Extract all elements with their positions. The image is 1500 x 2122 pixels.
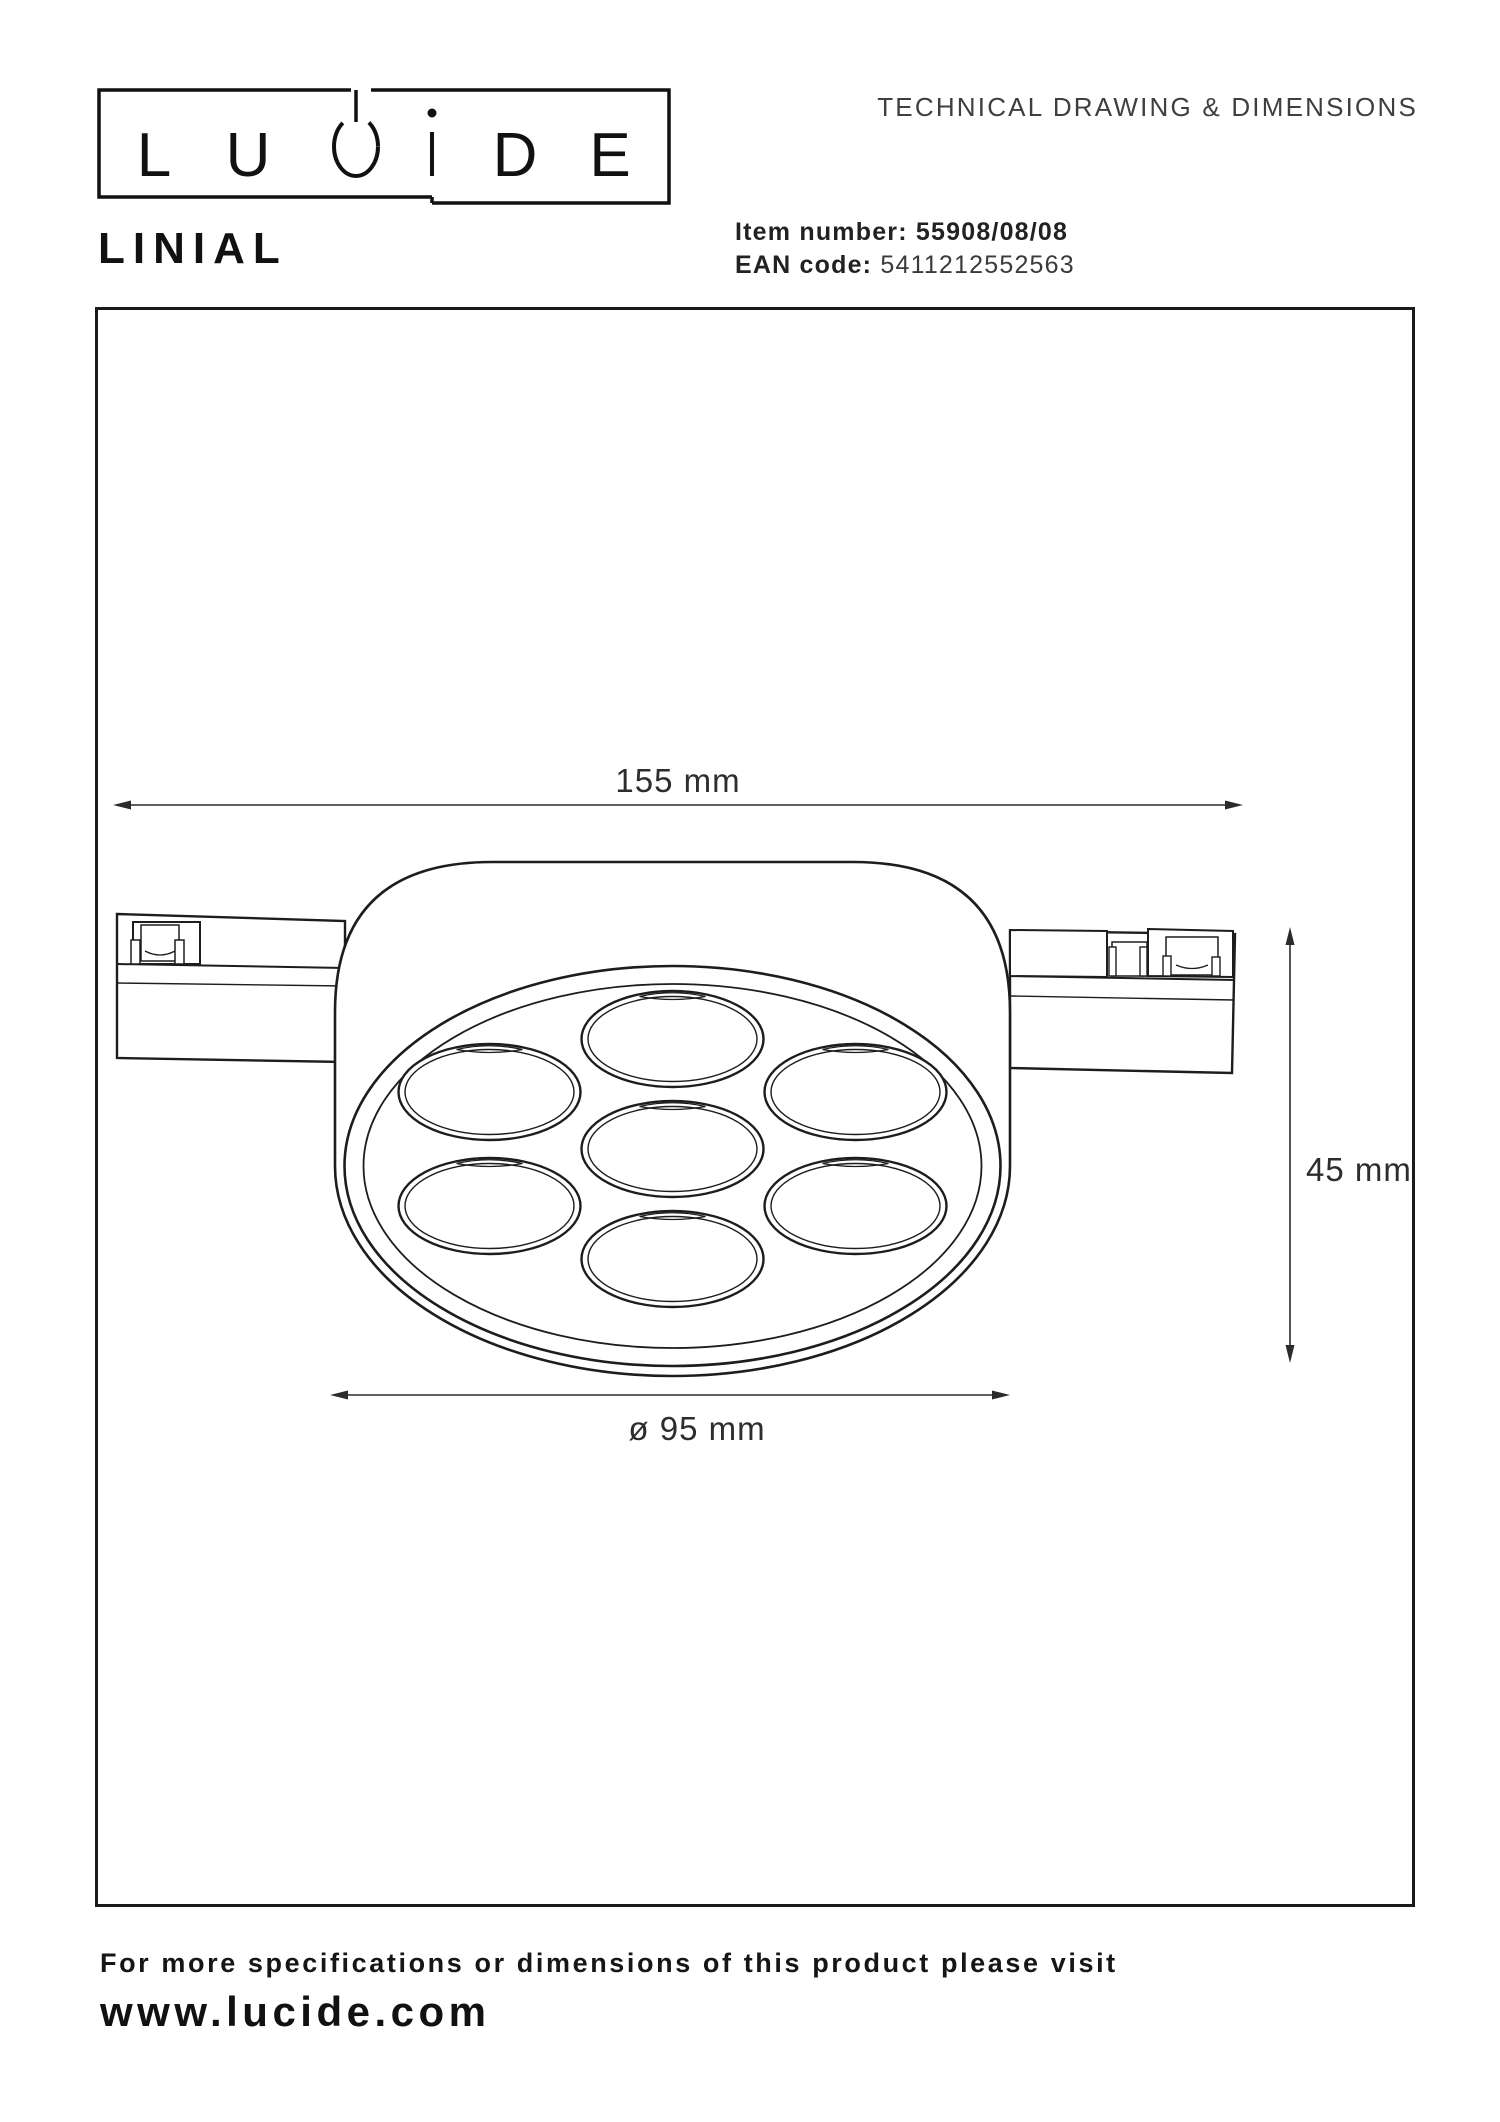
logo-letter-l: L xyxy=(137,121,171,190)
track-right xyxy=(1010,929,1235,1073)
lens xyxy=(582,991,764,1087)
product-identifiers: Item number: 55908/08/08 EAN code: 54112… xyxy=(735,216,1075,282)
fixture-head xyxy=(335,862,1010,1376)
arrow-left-icon xyxy=(330,1391,348,1400)
lens xyxy=(765,1158,947,1254)
diameter-dimension-label: ø 95 mm xyxy=(628,1410,765,1447)
item-number-value: 55908/08/08 xyxy=(916,218,1068,246)
arrow-right-icon xyxy=(1225,801,1243,810)
logo-letter-c-glyph xyxy=(334,117,378,176)
brand-logo: L U D E xyxy=(95,88,673,206)
footer-note: For more specifications or dimensions of… xyxy=(100,1948,1118,1979)
diameter-dimension: ø 95 mm xyxy=(330,1391,1010,1448)
width-dimension-label: 155 mm xyxy=(615,762,740,799)
lens xyxy=(582,1211,764,1307)
track-left xyxy=(117,914,345,1062)
lens xyxy=(582,1101,764,1197)
item-number-row: Item number: 55908/08/08 xyxy=(735,216,1075,249)
website-link: www.lucide.com xyxy=(100,1988,491,2036)
product-name: LINIAL xyxy=(98,224,288,274)
lens xyxy=(765,1044,947,1140)
logo-letter-u: U xyxy=(226,121,271,190)
track-left-adapter xyxy=(131,922,200,964)
lens xyxy=(399,1044,581,1140)
height-dimension: 45 mm xyxy=(1286,927,1412,1363)
datasheet-page: L U D E TECHNICAL DRAWING & DIMENSIONS L… xyxy=(0,0,1500,2122)
arrow-right-icon xyxy=(992,1391,1010,1400)
ean-code-value: 5411212552563 xyxy=(880,251,1075,279)
item-number-label: Item number: xyxy=(735,218,908,246)
arrow-left-icon xyxy=(113,801,131,810)
logo-letter-i-dot xyxy=(428,109,437,118)
logo-letter-e: E xyxy=(589,121,630,190)
arrow-down-icon xyxy=(1286,1345,1295,1363)
lens xyxy=(399,1158,581,1254)
technical-drawing: 155 mm 45 mm ø 95 mm xyxy=(95,307,1415,1907)
width-dimension: 155 mm xyxy=(113,762,1243,810)
height-dimension-label: 45 mm xyxy=(1306,1151,1412,1188)
ean-code-label: EAN code: xyxy=(735,251,872,279)
document-title: TECHNICAL DRAWING & DIMENSIONS xyxy=(877,92,1418,123)
logo-letter-d: D xyxy=(493,121,538,190)
arrow-up-icon xyxy=(1286,927,1295,945)
ean-code-row: EAN code: 5411212552563 xyxy=(735,249,1075,282)
